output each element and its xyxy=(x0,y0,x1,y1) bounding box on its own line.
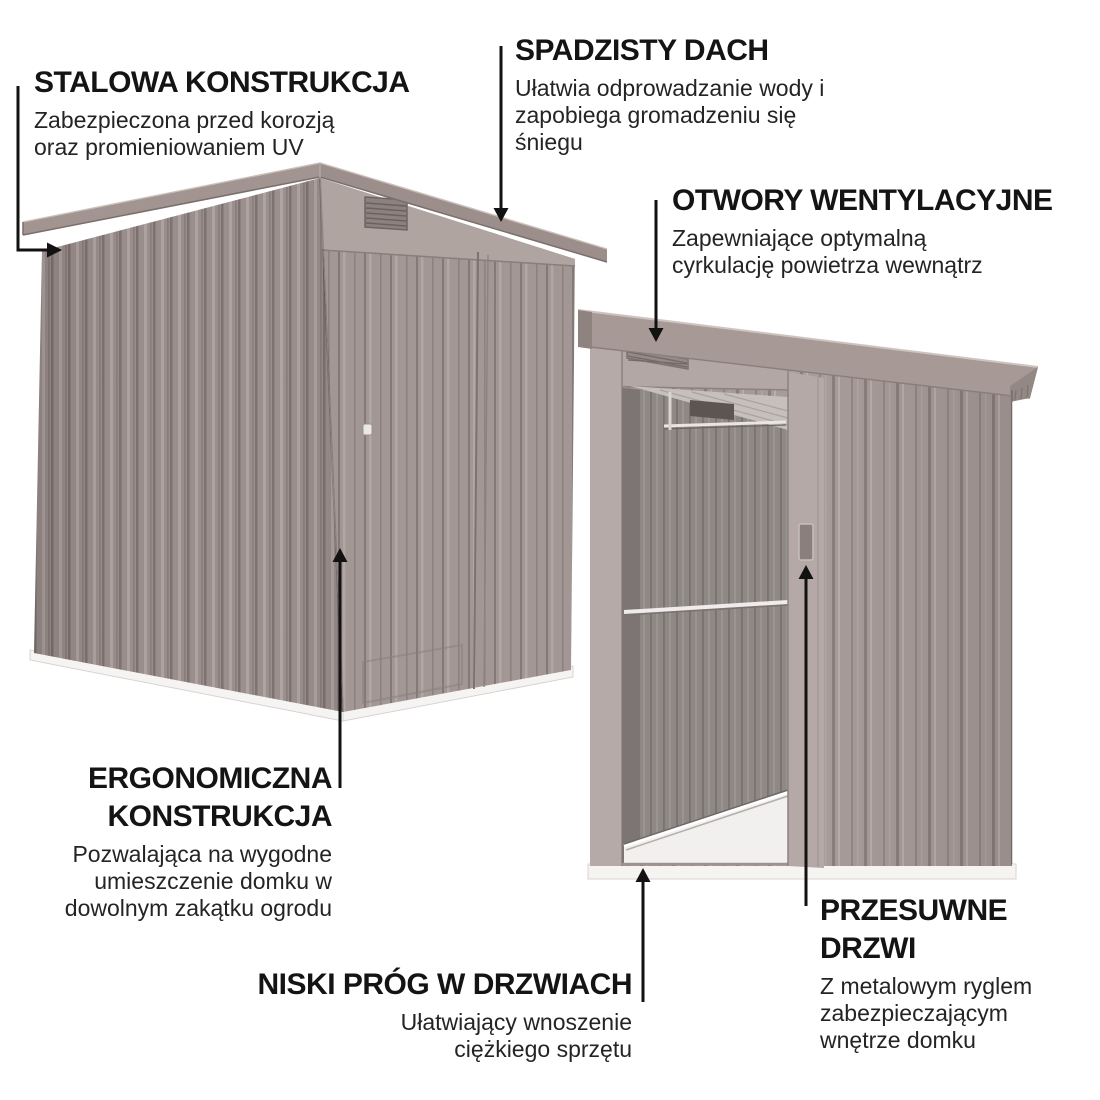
feature-description: Zapewniające optymalną cyrkulację powiet… xyxy=(672,225,1024,279)
left-shed-vent xyxy=(365,197,407,230)
feature-steel-construction: STALOWA KONSTRUKCJA Zabezpieczona przed … xyxy=(34,64,434,161)
feature-sloped-roof: SPADZISTY DACH Ułatwia odprowadzanie wod… xyxy=(515,32,867,156)
feature-title: SPADZISTY DACH xyxy=(515,32,867,70)
feature-title: ERGONOMICZNA KONSTRUKCJA xyxy=(47,760,332,836)
interior-back-wall xyxy=(640,390,788,864)
infographic-canvas: STALOWA KONSTRUKCJA Zabezpieczona przed … xyxy=(0,0,1100,1100)
left-shed-door-handle xyxy=(363,424,372,435)
feature-title: OTWORY WENTYLACYJNE xyxy=(672,182,1072,220)
feature-description: Ułatwiający wnoszenie ciężkiego sprzętu xyxy=(377,1009,632,1063)
feature-sliding-door: PRZESUWNE DRZWI Z metalowym ryglem zabez… xyxy=(820,892,1070,1054)
feature-title: PRZESUWNE DRZWI xyxy=(820,892,1070,968)
feature-low-threshold: NISKI PRÓG W DRZWIACH Ułatwiający wnosze… xyxy=(202,966,632,1063)
right-shed-illustration xyxy=(578,310,1038,879)
arrow-sloped-roof xyxy=(494,46,509,222)
feature-description: Pozwalająca na wygodne umieszczenie domk… xyxy=(47,841,332,922)
feature-title: STALOWA KONSTRUKCJA xyxy=(34,64,434,102)
left-shed-illustration xyxy=(23,163,607,721)
feature-description: Zabezpieczona przed korozją oraz promien… xyxy=(34,107,379,161)
interior-left-wall xyxy=(622,388,640,864)
sliding-door-handle xyxy=(799,524,813,560)
feature-description: Ułatwia odprowadzanie wody i zapobiega g… xyxy=(515,75,855,156)
right-shed-interior xyxy=(622,386,788,864)
arrow-low-threshold xyxy=(636,868,651,1002)
feature-ventilation-openings: OTWORY WENTYLACYJNE Zapewniające optymal… xyxy=(672,182,1072,279)
feature-description: Z metalowym ryglem zabezpieczającym wnęt… xyxy=(820,973,1052,1054)
feature-ergonomic-construction: ERGONOMICZNA KONSTRUKCJA Pozwalająca na … xyxy=(47,760,332,922)
feature-title: NISKI PRÓG W DRZWIACH xyxy=(202,966,632,1004)
right-shed-left-jamb xyxy=(590,330,622,866)
